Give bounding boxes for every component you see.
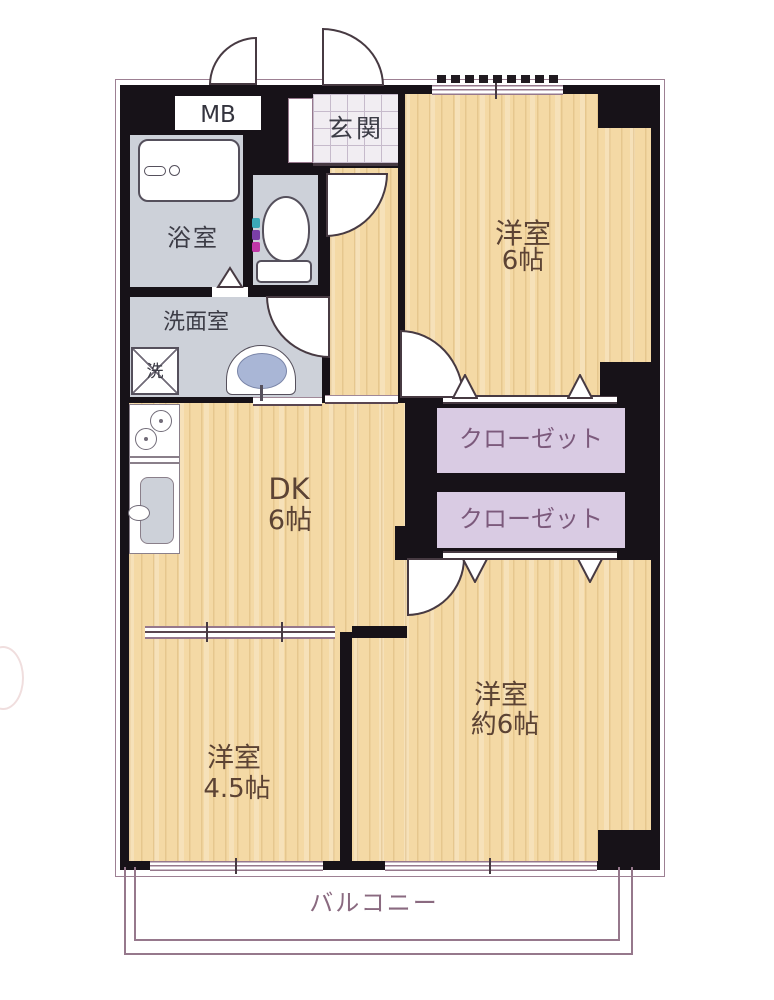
pillar-top-right bbox=[598, 94, 651, 128]
window-top bbox=[432, 85, 563, 95]
bath-folding-door-icon bbox=[216, 266, 244, 288]
counter-edge-line bbox=[129, 456, 180, 458]
window-top-tick bbox=[495, 83, 497, 99]
room-top-name: 洋室 bbox=[453, 219, 593, 248]
sliding-door-tick bbox=[206, 622, 208, 642]
wall-dk-room-right bbox=[352, 626, 407, 638]
room-left-name: 洋室 bbox=[164, 745, 304, 773]
toilet-tank bbox=[256, 260, 312, 283]
floor-plan: MB 玄関 浴室 洗面室 洗 洋室 6帖 DK 6帖 クローゼット クローゼット… bbox=[0, 0, 774, 1000]
balcony-label: バルコニー bbox=[294, 891, 454, 916]
room-left-size: 4.5帖 bbox=[167, 776, 307, 803]
watermark-arc bbox=[0, 646, 24, 710]
opening-corridor-dk bbox=[325, 395, 398, 404]
pillar-mid-right bbox=[600, 362, 651, 396]
window-shutter-dashes bbox=[437, 75, 563, 83]
closet-door-icon bbox=[462, 558, 488, 583]
closet-lower-label: クローゼット bbox=[451, 507, 611, 532]
closet-upper-label: クローゼット bbox=[451, 427, 611, 452]
stove-burner-dot bbox=[159, 419, 163, 423]
pillar-bottom-right bbox=[598, 830, 651, 861]
wash-basin-faucet-icon bbox=[260, 385, 263, 401]
genkan-label: 玄関 bbox=[286, 116, 426, 142]
counter-edge-line bbox=[129, 462, 180, 464]
bathtub-drain-icon bbox=[169, 165, 180, 176]
bathtub-faucet-icon bbox=[144, 166, 166, 176]
washer-label: 洗 bbox=[125, 364, 185, 382]
dk-size: 6帖 bbox=[220, 507, 360, 535]
wall-divider-bottom-rooms bbox=[340, 632, 352, 861]
sink-faucet-icon bbox=[128, 505, 150, 521]
sliding-door-tick bbox=[281, 622, 283, 642]
dk-name: DK bbox=[219, 474, 359, 504]
genkan-step bbox=[313, 163, 398, 166]
sliding-door-dk-room-left bbox=[145, 626, 335, 639]
door-entrance bbox=[322, 28, 384, 86]
closet-door-icon bbox=[452, 374, 478, 399]
opening-washroom-dk bbox=[253, 397, 322, 406]
room-top-size: 6帖 bbox=[453, 248, 593, 275]
washroom-label: 洗面室 bbox=[126, 311, 266, 334]
closet-door-icon bbox=[577, 558, 603, 583]
closet-door-icon bbox=[567, 374, 593, 399]
room-right-size: 約6帖 bbox=[435, 712, 575, 739]
wall-stub-dk bbox=[395, 526, 407, 560]
bathroom-label: 浴室 bbox=[123, 226, 263, 251]
wash-basin-bowl bbox=[237, 353, 287, 389]
room-right-name: 洋室 bbox=[431, 682, 571, 710]
door-meter-box bbox=[209, 37, 257, 85]
stove-burner-dot bbox=[144, 437, 148, 441]
toilet-bowl bbox=[262, 196, 310, 262]
bath-door-gap bbox=[212, 287, 248, 297]
mb-label: MB bbox=[178, 103, 258, 127]
